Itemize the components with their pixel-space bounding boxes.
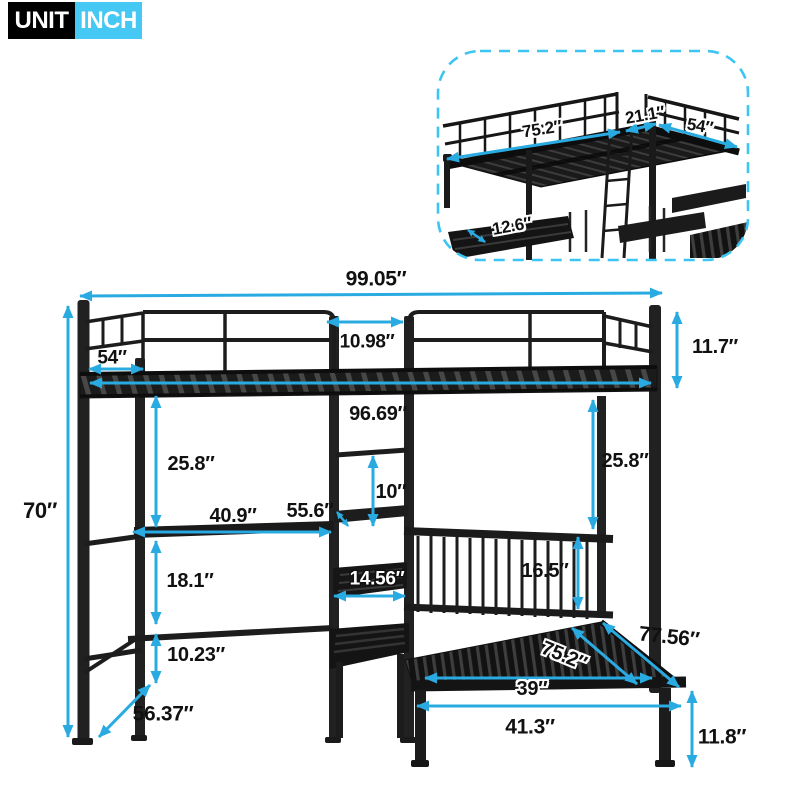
dim-side-depth-label: 54″ bbox=[97, 349, 126, 368]
dim-shelf-width-label: 14.56″ bbox=[350, 570, 405, 589]
dim-desk-depth-label: 56.37″ bbox=[133, 704, 194, 725]
dim-inner-length-label: 96.69″ bbox=[349, 404, 407, 424]
inset-detail-view bbox=[438, 51, 748, 260]
dim-bed-height-label: 11.8″ bbox=[698, 727, 746, 748]
dim-total-length-label: 99.05″ bbox=[346, 269, 407, 290]
dim-clearance-left-label: 25.8″ bbox=[167, 454, 214, 474]
dim-bed-width-outer-label: 41.3″ bbox=[505, 717, 554, 738]
dim-desk-to-shelf-label: 18.1″ bbox=[166, 571, 213, 591]
dim-guardrail-height-label: 11.7″ bbox=[692, 337, 738, 357]
unit-badge-label: UNIT bbox=[8, 2, 75, 39]
dimension-diagram: UNIT INCH 99.05″ 70″ 54″ 10.98″ 11.7″ 96… bbox=[0, 0, 800, 800]
dim-total-height-label: 70″ bbox=[23, 500, 57, 522]
inset-dim-bed-width-label: 54″ bbox=[686, 116, 714, 137]
unit-badge-value: INCH bbox=[75, 2, 142, 39]
dim-desk-height-label: 55.6″ bbox=[286, 501, 333, 521]
dim-shelf-gap-label: 10″ bbox=[376, 482, 407, 502]
unit-badge: UNIT INCH bbox=[8, 2, 142, 39]
dim-lower-gap-label: 10.23″ bbox=[167, 645, 225, 665]
dim-clearance-right-label: 25.8″ bbox=[601, 451, 648, 471]
loft-bed-line-drawing bbox=[0, 0, 800, 800]
dim-bed-width-inner-label: 39″ bbox=[517, 679, 548, 699]
dim-ladder-opening-label: 10.98″ bbox=[340, 333, 395, 352]
dim-desk-length-label: 40.9″ bbox=[209, 506, 256, 526]
dim-headboard-height-label: 16.5″ bbox=[521, 561, 568, 581]
